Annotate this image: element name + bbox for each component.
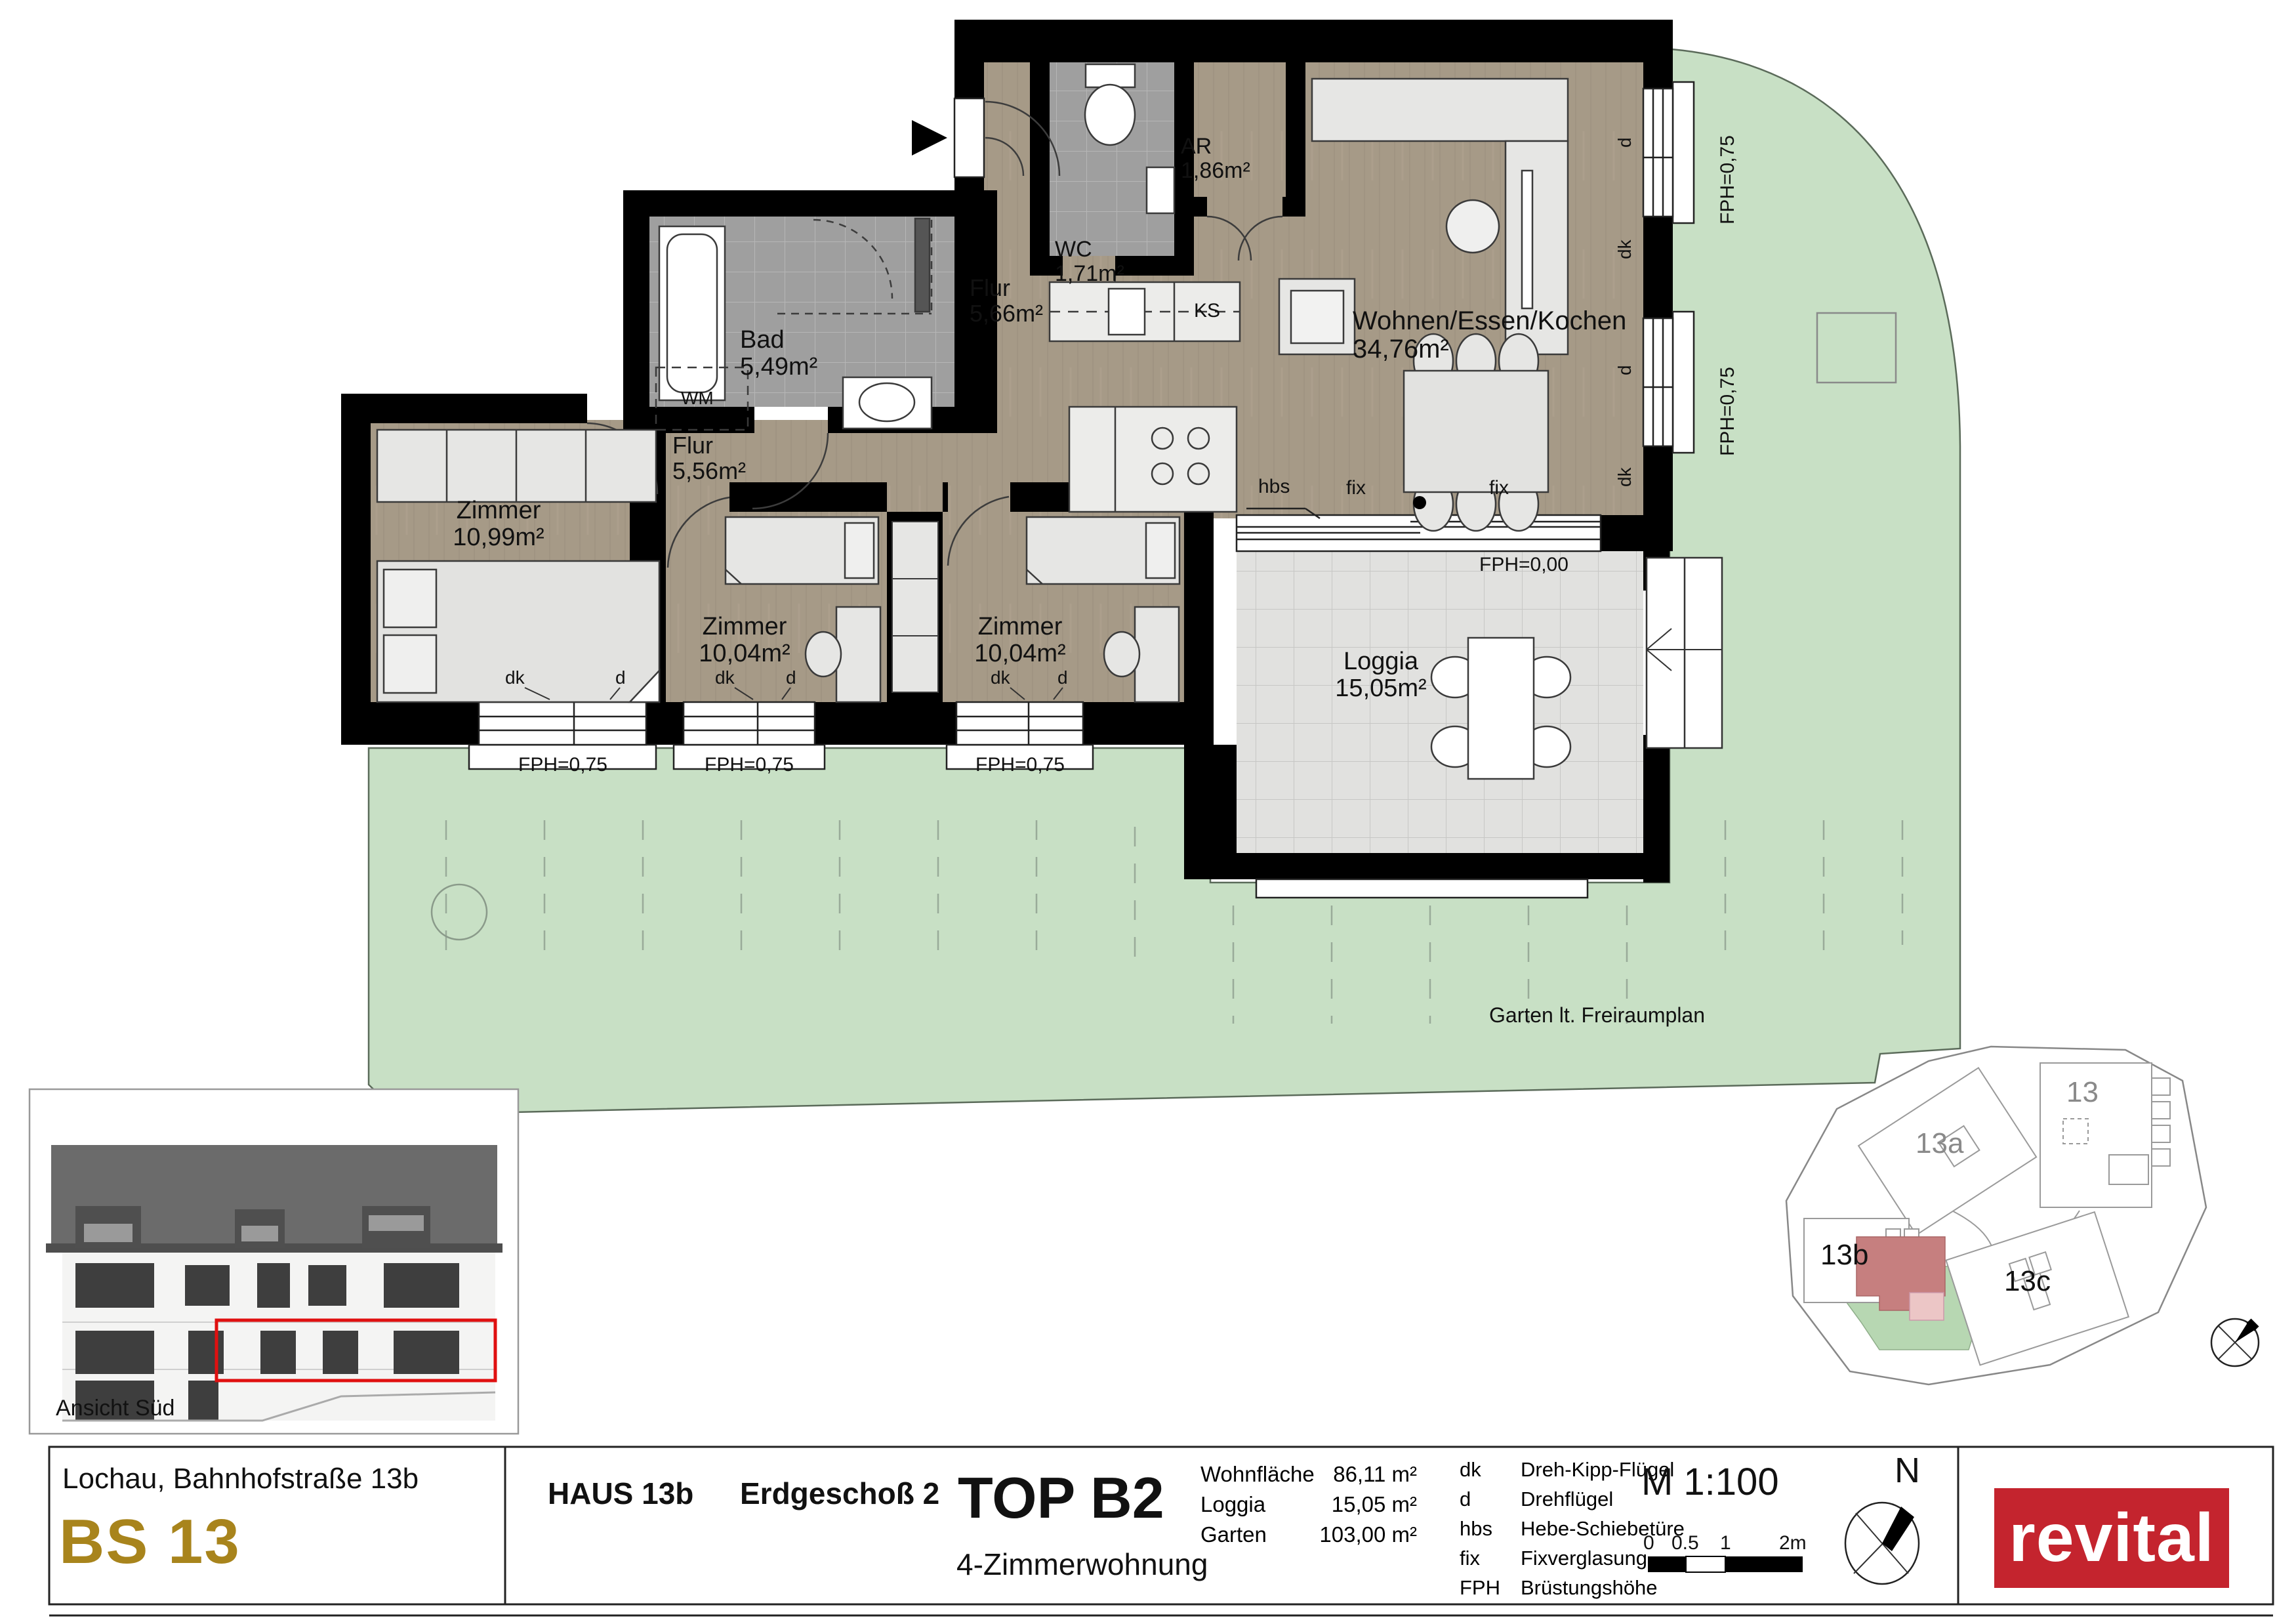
area-row-value-loggia: 15,05 m² <box>1305 1492 1417 1517</box>
elevation-caption: Ansicht Süd <box>56 1396 174 1421</box>
legend-term-fph: Brüstungshöhe <box>1521 1576 1658 1600</box>
scale-tick-2m: 2m <box>1779 1533 1807 1554</box>
built-in-wardrobe <box>892 522 938 692</box>
dk-label-win1: dk <box>1615 239 1635 259</box>
fridge-label: KS <box>1194 301 1220 322</box>
scale-bar <box>1648 1556 1803 1572</box>
fph075-label-right-1: FPH=0,75 <box>1717 135 1738 224</box>
brand-logo: revital <box>1994 1488 2229 1588</box>
hbs-label: hbs <box>1258 476 1290 497</box>
project-code: BS 13 <box>59 1508 241 1576</box>
garten-note: Garten lt. Freiraumplan <box>1489 1004 1705 1027</box>
legend-term-fix: Fixverglasung <box>1521 1547 1647 1570</box>
unit-top-label: TOP B2 <box>958 1467 1164 1529</box>
room-label-ar: AR 1,86m² <box>1181 135 1250 182</box>
room-label-flur1: Flur 5,66m² <box>970 276 1043 327</box>
room-label-wc: WC 1,71m² <box>1055 238 1124 285</box>
room-label-zimmer3: Zimmer 10,04m² <box>954 614 1086 667</box>
dk-label-z2: dk <box>715 668 735 688</box>
siteplan-label-13a: 13a <box>1916 1127 1963 1160</box>
siteplan-label-13b: 13b <box>1820 1239 1868 1272</box>
area-row-label-wohnflaeche: Wohnfläche <box>1200 1462 1315 1487</box>
siteplan-label-13: 13 <box>2066 1076 2099 1109</box>
scale-tick-1: 1 <box>1720 1533 1731 1554</box>
room-label-flur2: Flur 5,56m² <box>672 433 746 484</box>
d-label-win1: d <box>1615 137 1635 148</box>
fph075-label-right-2: FPH=0,75 <box>1717 367 1738 456</box>
north-compass-icon <box>1845 1503 1919 1584</box>
legend-abbr-fix: fix <box>1460 1547 1480 1570</box>
fix-label-2: fix <box>1489 478 1509 499</box>
scale-tick-05: 0.5 <box>1671 1533 1699 1554</box>
fph075-label-2: FPH=0,75 <box>697 755 802 776</box>
brand-logo-text: revital <box>2009 1499 2214 1577</box>
haus-label: HAUS 13b <box>548 1478 693 1510</box>
d-label-win2: d <box>1615 365 1635 375</box>
north-label: N <box>1895 1451 1920 1489</box>
area-row-label-garten: Garten <box>1200 1522 1267 1547</box>
fph075-label-3: FPH=0,75 <box>968 755 1073 776</box>
legend-term-d: Drehflügel <box>1521 1488 1613 1511</box>
fph075-label-1: FPH=0,75 <box>510 755 615 776</box>
room-label-zimmer1: Zimmer 10,99m² <box>430 497 567 551</box>
d-label-z2: d <box>786 668 796 688</box>
scale-tick-0: 0 <box>1643 1533 1654 1554</box>
loggia-stairs <box>1647 558 1722 748</box>
fix-label-1: fix <box>1346 478 1366 499</box>
d-label-z3: d <box>1057 668 1068 688</box>
floor-label: Erdgeschoß 2 <box>740 1478 939 1510</box>
siteplan-label-13c: 13c <box>2004 1265 2051 1298</box>
site-plan <box>1786 1047 2259 1385</box>
elevation-view <box>30 1089 518 1434</box>
scale-label: M 1:100 <box>1641 1462 1779 1503</box>
room-label-wohnen: Wohnen/Essen/Kochen 34,76m² <box>1353 307 1626 364</box>
floorplan-page: WC 1,71m² AR 1,86m² Bad 5,49m² Flur 5,66… <box>0 0 2296 1624</box>
fph000-label: FPH=0,00 <box>1479 554 1568 575</box>
legend-abbr-hbs: hbs <box>1460 1517 1492 1541</box>
legend-abbr-fph: FPH <box>1460 1576 1500 1600</box>
area-row-value-garten: 103,00 m² <box>1305 1522 1417 1547</box>
d-label-z1: d <box>615 668 626 688</box>
room-label-zimmer2: Zimmer 10,04m² <box>679 614 810 667</box>
dk-label-z1: dk <box>505 668 525 688</box>
area-row-value-wohnflaeche: 86,11 m² <box>1305 1462 1417 1487</box>
legend-abbr-dk: dk <box>1460 1458 1481 1482</box>
area-row-label-loggia: Loggia <box>1200 1492 1265 1517</box>
legend-abbr-d: d <box>1460 1488 1471 1511</box>
unit-type-label: 4-Zimmerwohnung <box>956 1549 1208 1581</box>
room-label-bad: Bad 5,49m² <box>740 327 817 381</box>
dk-label-win2: dk <box>1615 467 1635 487</box>
project-address: Lochau, Bahnhofstraße 13b <box>62 1463 419 1495</box>
plan-drawing <box>0 0 2296 1624</box>
siteplan-compass-icon <box>2211 1319 2259 1366</box>
room-label-loggia: Loggia 15,05m² <box>1305 648 1456 702</box>
washer-label: WM <box>681 388 714 408</box>
legend-term-hbs: Hebe-Schiebetüre <box>1521 1517 1685 1541</box>
entrance-arrow <box>912 120 947 156</box>
dk-label-z3: dk <box>991 668 1010 688</box>
